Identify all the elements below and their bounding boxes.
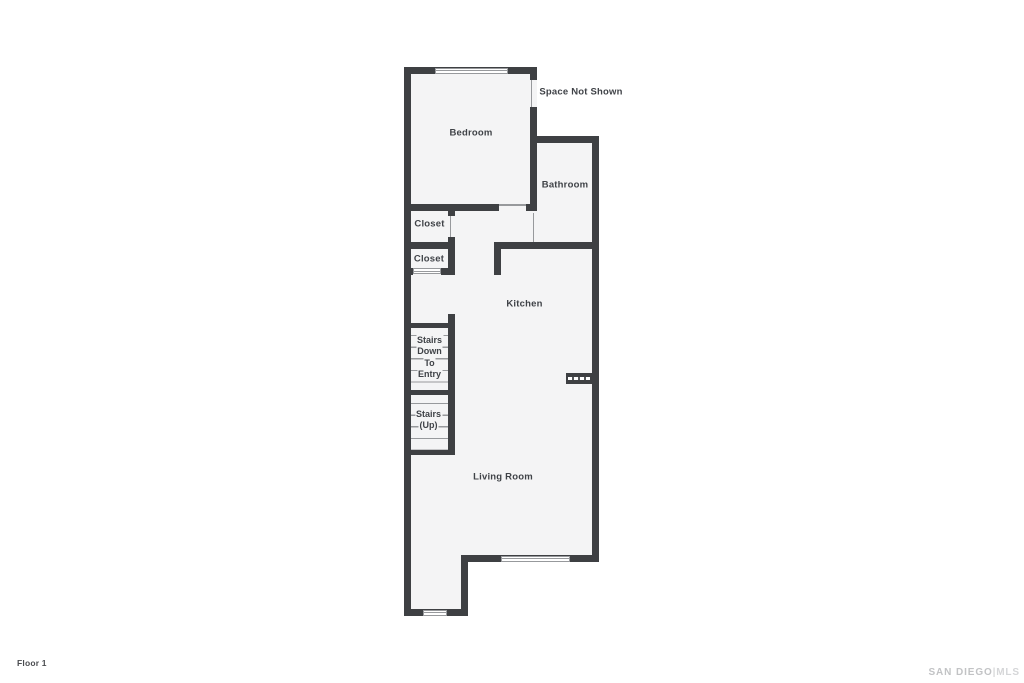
wall-bathroom-top (530, 136, 599, 143)
closet1-door-line (450, 216, 452, 237)
space-not-shown-area (537, 67, 599, 136)
stairs-up-line-2: (Up) (418, 420, 438, 432)
wall-bedroom-bottom-right (526, 204, 537, 211)
wall-kitchen-top (494, 242, 599, 249)
stairs-down-line-4: Entry (417, 369, 442, 381)
closet2-door-window (413, 268, 441, 274)
room-fill-main (410, 73, 592, 556)
living-room-label: Living Room (473, 472, 533, 483)
stairs-down-line-3: To (423, 358, 435, 370)
closet2-label: Closet (414, 254, 444, 265)
wall-left (404, 67, 411, 616)
stairs-down-line-2: Down (416, 346, 443, 358)
bedroom-door-line (499, 204, 527, 206)
stairs-down-line-1: Stairs (416, 335, 443, 347)
space-not-shown-label: Space Not Shown (539, 86, 622, 97)
watermark-suffix: MLS (996, 667, 1020, 678)
stairs-up-line-1: Stairs (415, 409, 442, 421)
entry-window (423, 610, 447, 616)
wall-closet2-bottom-left (404, 268, 414, 275)
bedroom-window (435, 68, 508, 74)
wall-stairs-right (448, 314, 455, 455)
wall-bedroom-right-upper (530, 67, 537, 80)
stairs-end-bar (408, 450, 449, 455)
wall-closet1-stub-top (448, 204, 455, 216)
bedroom-opening-line (531, 80, 533, 107)
wall-bedroom-right-lower (530, 107, 537, 210)
wall-closet2-bottom-right (441, 268, 455, 275)
floor-label: Floor 1 (17, 658, 47, 668)
wall-right (592, 136, 599, 562)
watermark-brand: SAN DIEGO (928, 667, 992, 678)
floor-plan-page: Bedroom Space Not Shown Bathroom Closet … (0, 0, 1024, 683)
living-room-window (501, 556, 570, 562)
wall-kitchen-stub (494, 242, 501, 275)
mls-watermark: SAN DIEGO|MLS (928, 667, 1020, 678)
bedroom-label: Bedroom (449, 128, 492, 139)
stairs-down-label: Stairs Down To Entry (416, 335, 443, 381)
wall-entry-step (461, 555, 468, 616)
fireplace (566, 373, 592, 385)
stairs-divider-bar (409, 390, 450, 396)
bathroom-label: Bathroom (542, 180, 588, 191)
room-fill-entry (410, 556, 462, 610)
closet1-label: Closet (414, 218, 444, 229)
kitchen-label: Kitchen (506, 299, 542, 310)
stairs-up-label: Stairs (Up) (415, 409, 442, 432)
bathroom-door-line (533, 213, 535, 242)
